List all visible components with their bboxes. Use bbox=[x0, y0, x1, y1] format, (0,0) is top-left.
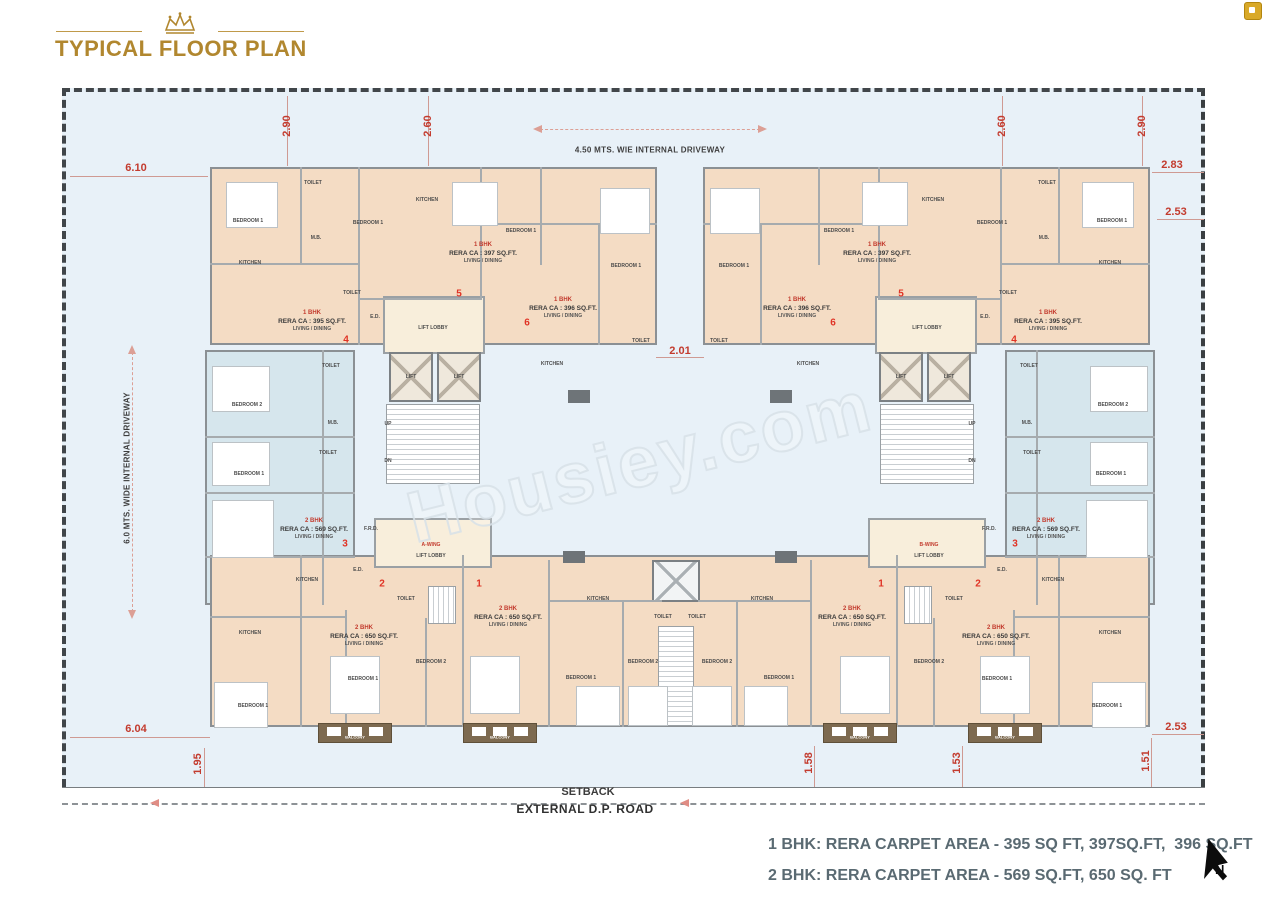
plan-structure bbox=[132, 352, 133, 612]
plan-structure bbox=[425, 618, 427, 727]
plan-structure bbox=[710, 188, 760, 234]
legend-2bhk: 2 BHK: RERA CARPET AREA - 569 SQ.FT, 650… bbox=[768, 867, 1253, 885]
plan-structure bbox=[205, 436, 355, 438]
plan-structure bbox=[1082, 182, 1134, 228]
plan-structure bbox=[568, 390, 590, 403]
plan-structure bbox=[204, 748, 205, 787]
floor-plan-page: TYPICAL FLOOR PLAN bbox=[0, 0, 1280, 911]
plan-structure bbox=[904, 586, 932, 624]
plan-structure bbox=[1152, 172, 1204, 173]
plan-structure bbox=[540, 167, 542, 265]
plan-structure bbox=[1002, 263, 1150, 265]
crown-icon bbox=[56, 12, 304, 36]
plan-structure bbox=[840, 656, 890, 714]
plan-structure bbox=[1152, 734, 1204, 735]
plan-structure bbox=[56, 31, 142, 32]
plan-structure bbox=[1157, 219, 1204, 220]
plan-structure bbox=[428, 96, 429, 166]
plan-structure bbox=[210, 263, 358, 265]
plan-structure bbox=[875, 296, 977, 354]
plan-structure bbox=[1090, 442, 1148, 486]
plan-structure bbox=[692, 686, 732, 726]
balcony bbox=[968, 723, 1042, 743]
staircase bbox=[880, 404, 974, 484]
plan-structure bbox=[322, 350, 324, 605]
lift-shaft bbox=[389, 352, 433, 402]
left-driveway-label: 6.0 MTS. WIDE INTERNAL DRIVEWAY bbox=[123, 392, 132, 544]
plan-structure bbox=[205, 492, 355, 494]
plan-structure bbox=[775, 551, 797, 563]
plan-structure bbox=[818, 167, 820, 265]
plan-structure bbox=[218, 31, 304, 32]
plan-structure bbox=[1005, 492, 1155, 494]
plan-structure bbox=[210, 616, 345, 618]
plan-structure bbox=[962, 746, 963, 787]
plan-structure bbox=[933, 618, 935, 727]
lift-shaft bbox=[927, 352, 971, 402]
plan-structure bbox=[212, 500, 274, 558]
plan-structure bbox=[1086, 500, 1148, 558]
plan-structure bbox=[814, 746, 815, 787]
plan-structure bbox=[383, 296, 485, 354]
plan-structure bbox=[576, 686, 620, 726]
plan-structure bbox=[150, 799, 159, 807]
plan-structure bbox=[70, 737, 210, 738]
plan-structure bbox=[1058, 167, 1060, 265]
north-arrow-icon bbox=[1194, 836, 1234, 886]
plan-structure bbox=[896, 555, 898, 727]
plan-structure bbox=[462, 555, 464, 727]
plan-structure bbox=[62, 787, 1205, 788]
plan-structure bbox=[622, 600, 624, 727]
plan-structure bbox=[70, 176, 208, 177]
plan-structure bbox=[1000, 167, 1002, 345]
north-letter: N bbox=[1215, 862, 1224, 877]
plan-structure bbox=[358, 298, 482, 300]
plan-structure bbox=[628, 686, 668, 726]
plan-structure bbox=[652, 560, 700, 602]
balcony bbox=[463, 723, 537, 743]
plan-structure bbox=[698, 600, 812, 602]
plan-structure bbox=[128, 610, 136, 619]
plan-structure bbox=[128, 345, 136, 354]
plan-structure bbox=[1005, 436, 1155, 438]
lift-shaft bbox=[879, 352, 923, 402]
road-label: EXTERNAL D.P. ROAD bbox=[516, 802, 653, 816]
plan-structure bbox=[330, 656, 380, 714]
plan-structure bbox=[540, 129, 760, 130]
top-driveway-label: 4.50 MTS. WIE INTERNAL DRIVEWAY bbox=[575, 146, 725, 155]
page-title: TYPICAL FLOOR PLAN bbox=[55, 36, 307, 62]
setback-label: SETBACK bbox=[561, 786, 614, 798]
balcony bbox=[318, 723, 392, 743]
plan-structure bbox=[214, 682, 268, 728]
plan-structure bbox=[1151, 738, 1152, 787]
plan-structure bbox=[452, 182, 498, 226]
balcony bbox=[823, 723, 897, 743]
plan-structure bbox=[548, 560, 550, 727]
plan-structure bbox=[680, 799, 689, 807]
plan-structure bbox=[1142, 96, 1143, 166]
plan-structure bbox=[758, 125, 767, 133]
plan-structure bbox=[1036, 350, 1038, 605]
corner-logo-icon bbox=[1244, 2, 1262, 20]
plan-structure bbox=[563, 551, 585, 563]
plan-structure bbox=[1015, 616, 1150, 618]
plan-structure bbox=[548, 600, 662, 602]
plan-structure bbox=[760, 225, 762, 345]
plan-structure bbox=[600, 188, 650, 234]
plan-structure bbox=[358, 167, 360, 345]
plan-structure bbox=[212, 366, 270, 412]
plan-structure bbox=[300, 167, 302, 265]
plan-structure bbox=[533, 125, 542, 133]
plan-structure bbox=[980, 656, 1030, 714]
plan-structure bbox=[878, 298, 1002, 300]
plan-structure bbox=[744, 686, 788, 726]
plan-structure bbox=[470, 656, 520, 714]
plan-structure bbox=[810, 560, 812, 727]
plan-structure bbox=[226, 182, 278, 228]
plan-structure bbox=[862, 182, 908, 226]
plan-structure bbox=[300, 555, 302, 727]
plan-structure bbox=[287, 96, 288, 166]
plan-structure bbox=[212, 442, 270, 486]
plan-structure bbox=[656, 357, 704, 358]
plan-structure bbox=[598, 225, 600, 345]
plan-structure bbox=[736, 600, 738, 727]
lift-shaft bbox=[437, 352, 481, 402]
area-legend: 1 BHK: RERA CARPET AREA - 395 SQ FT, 397… bbox=[768, 836, 1253, 898]
plan-structure bbox=[1249, 7, 1255, 13]
plan-structure bbox=[868, 518, 986, 568]
plan-structure bbox=[1058, 555, 1060, 727]
plan-structure bbox=[1002, 96, 1003, 166]
plan-structure bbox=[1090, 366, 1148, 412]
plan-structure bbox=[428, 586, 456, 624]
legend-1bhk: 1 BHK: RERA CARPET AREA - 395 SQ FT, 397… bbox=[768, 836, 1253, 854]
plan-structure bbox=[1092, 682, 1146, 728]
